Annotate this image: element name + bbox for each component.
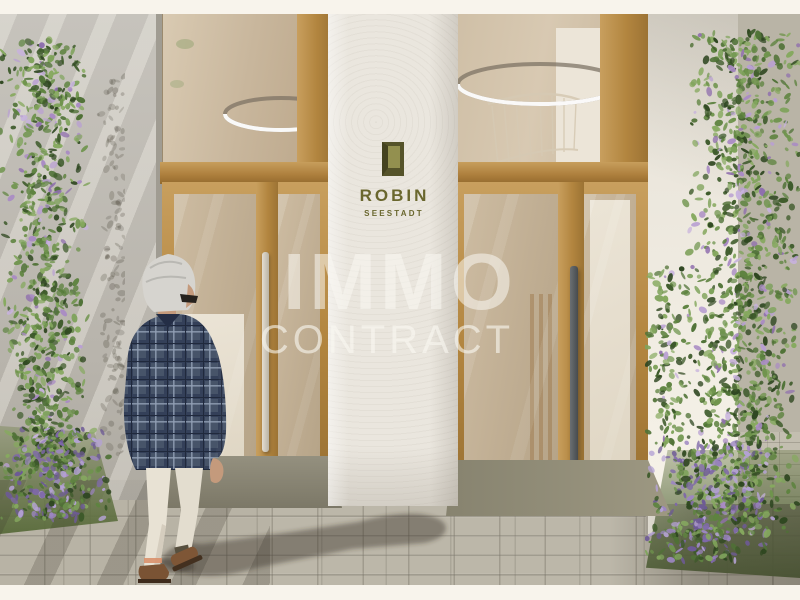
man-figure bbox=[124, 254, 226, 583]
brand-subtitle: SEESTADT bbox=[330, 209, 458, 218]
climbing-plants-left bbox=[0, 14, 125, 585]
door-handle-left bbox=[262, 252, 269, 452]
wood-column-right bbox=[600, 14, 648, 180]
sunglasses bbox=[180, 294, 198, 303]
plaid-blazer bbox=[124, 314, 221, 470]
lobby-interior-glow bbox=[590, 200, 630, 464]
right-hand bbox=[210, 458, 223, 483]
brand-pillar: ROBIN SEESTADT bbox=[328, 14, 458, 506]
door-mat-right bbox=[446, 460, 672, 516]
sidelight-glass bbox=[584, 194, 636, 468]
cuff-accent bbox=[144, 558, 162, 563]
transom-window-right bbox=[452, 14, 602, 180]
left-shoe bbox=[139, 564, 169, 581]
right-trouser-leg bbox=[175, 468, 203, 552]
sidelight-glass bbox=[278, 194, 320, 458]
entrance-photo: ROBIN SEESTADT bbox=[0, 14, 800, 585]
ring-light bbox=[163, 14, 297, 166]
letterbox-bottom bbox=[0, 585, 800, 600]
staircase-and-ring-lights bbox=[452, 14, 602, 180]
artwork-frame: ROBIN SEESTADT bbox=[0, 0, 800, 600]
transom-window-left bbox=[163, 14, 297, 166]
letterbox-top bbox=[0, 0, 800, 14]
brand-name: ROBIN bbox=[331, 186, 458, 206]
door-glass bbox=[464, 194, 558, 468]
pedestrian-man bbox=[110, 250, 240, 585]
brand-logo: ROBIN SEESTADT bbox=[328, 142, 458, 218]
climbing-plants-right bbox=[645, 14, 800, 585]
door-icon bbox=[382, 142, 404, 176]
